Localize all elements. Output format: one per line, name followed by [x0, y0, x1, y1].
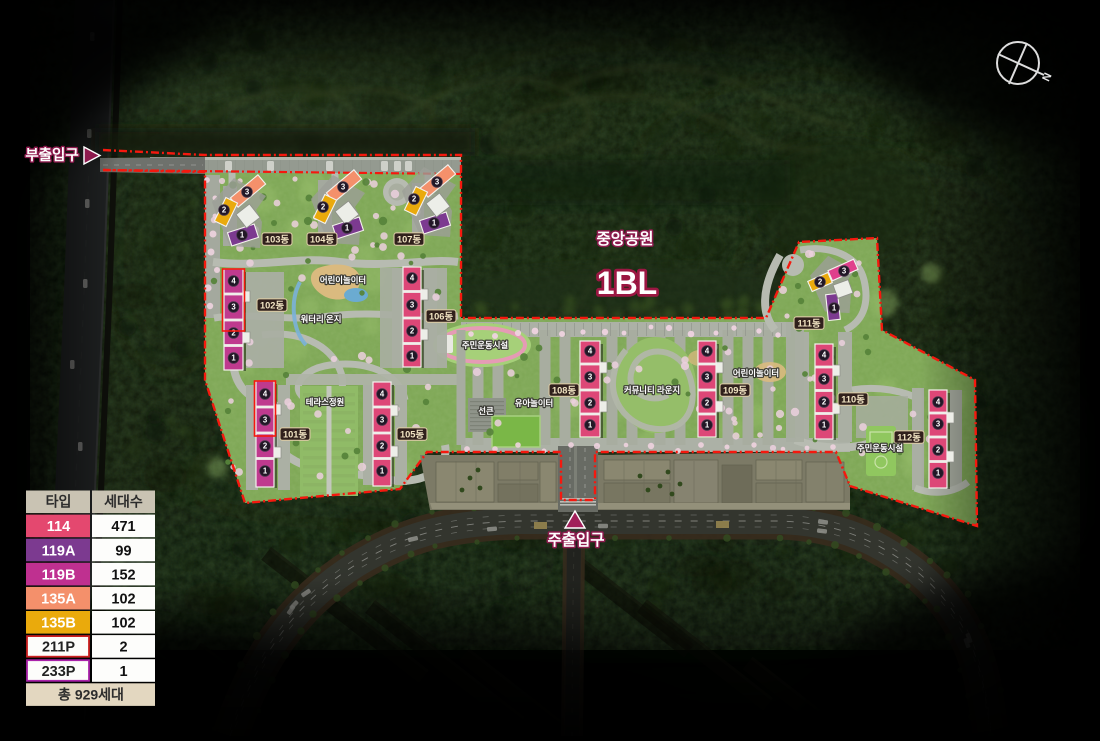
svg-text:102: 102 [111, 616, 135, 632]
svg-text:106동: 106동 [429, 311, 454, 321]
svg-text:3: 3 [245, 188, 250, 197]
svg-text:135B: 135B [41, 616, 76, 632]
svg-text:3: 3 [410, 301, 415, 310]
svg-text:1: 1 [119, 664, 127, 680]
svg-text:중앙공원: 중앙공원 [596, 229, 653, 248]
svg-text:1: 1 [936, 469, 941, 478]
svg-text:233P: 233P [42, 664, 76, 680]
svg-text:2: 2 [822, 398, 827, 407]
svg-text:4: 4 [380, 390, 385, 399]
svg-text:102동: 102동 [260, 300, 285, 310]
svg-text:2: 2 [818, 278, 823, 287]
svg-text:114: 114 [47, 519, 70, 535]
svg-text:103동: 103동 [265, 234, 290, 244]
svg-text:1: 1 [432, 219, 437, 228]
svg-text:112동: 112동 [897, 432, 921, 442]
svg-text:110동: 110동 [841, 394, 865, 404]
svg-text:108동: 108동 [552, 385, 577, 395]
svg-text:2: 2 [588, 399, 593, 408]
svg-text:2: 2 [231, 329, 236, 338]
svg-text:104동: 104동 [310, 234, 335, 244]
svg-text:1: 1 [705, 421, 710, 430]
svg-text:211P: 211P [42, 640, 75, 656]
svg-text:2: 2 [222, 206, 227, 215]
svg-text:152: 152 [111, 567, 135, 583]
svg-text:1: 1 [345, 224, 350, 233]
svg-text:4: 4 [936, 398, 941, 407]
svg-text:119A: 119A [42, 543, 76, 559]
svg-text:4: 4 [263, 390, 268, 399]
svg-text:105동: 105동 [400, 429, 425, 439]
svg-text:커뮤니티 라운지: 커뮤니티 라운지 [624, 385, 680, 395]
svg-text:1: 1 [263, 467, 268, 476]
svg-text:2: 2 [263, 442, 268, 451]
svg-text:세대수: 세대수 [104, 494, 143, 510]
svg-text:1: 1 [410, 352, 415, 361]
svg-text:워터리 온지: 워터리 온지 [301, 314, 342, 324]
svg-text:1BL: 1BL [597, 265, 657, 301]
svg-text:2: 2 [936, 446, 941, 455]
svg-text:어린이놀이터: 어린이놀이터 [320, 275, 366, 285]
svg-text:4: 4 [231, 277, 236, 286]
svg-text:어린이놀이터: 어린이놀이터 [733, 368, 779, 378]
svg-text:3: 3 [263, 416, 268, 425]
svg-text:3: 3 [435, 178, 440, 187]
svg-text:1: 1 [822, 421, 827, 430]
svg-text:119B: 119B [42, 567, 76, 583]
svg-text:주민운동시설: 주민운동시설 [462, 340, 509, 350]
svg-text:유아놀이터: 유아놀이터 [515, 398, 554, 408]
svg-text:3: 3 [588, 373, 593, 382]
svg-text:4: 4 [410, 274, 415, 283]
svg-text:선큰: 선큰 [478, 406, 494, 416]
svg-text:3: 3 [936, 420, 941, 429]
svg-text:111동: 111동 [797, 318, 820, 328]
svg-text:4: 4 [705, 347, 710, 356]
svg-text:테라스정원: 테라스정원 [306, 397, 345, 407]
svg-text:109동: 109동 [723, 385, 748, 395]
svg-text:3: 3 [842, 267, 847, 276]
svg-text:타입: 타입 [46, 494, 72, 510]
svg-text:2: 2 [119, 640, 127, 656]
svg-text:107동: 107동 [397, 234, 422, 244]
svg-text:주민운동시설: 주민운동시설 [857, 443, 904, 453]
svg-text:4: 4 [822, 351, 827, 360]
svg-text:1: 1 [231, 354, 236, 363]
svg-text:1: 1 [588, 421, 593, 430]
svg-text:1: 1 [380, 467, 385, 476]
svg-text:3: 3 [341, 183, 346, 192]
svg-text:2: 2 [321, 203, 326, 212]
svg-text:102: 102 [111, 592, 135, 608]
svg-text:2: 2 [410, 327, 415, 336]
svg-text:471: 471 [111, 519, 135, 535]
svg-text:1: 1 [240, 231, 245, 240]
svg-text:3: 3 [380, 416, 385, 425]
svg-text:4: 4 [588, 347, 593, 356]
svg-text:총 929세대: 총 929세대 [58, 687, 124, 703]
svg-text:2: 2 [412, 195, 417, 204]
svg-text:99: 99 [115, 543, 131, 559]
svg-text:주출입구: 주출입구 [547, 531, 604, 549]
svg-text:3: 3 [705, 373, 710, 382]
svg-text:101동: 101동 [283, 429, 308, 439]
svg-text:부출입구: 부출입구 [25, 147, 78, 164]
svg-text:1: 1 [832, 304, 837, 313]
svg-text:135A: 135A [41, 592, 76, 608]
svg-text:3: 3 [822, 375, 827, 384]
svg-text:2: 2 [380, 442, 385, 451]
svg-text:2: 2 [705, 399, 710, 408]
svg-text:3: 3 [231, 303, 236, 312]
